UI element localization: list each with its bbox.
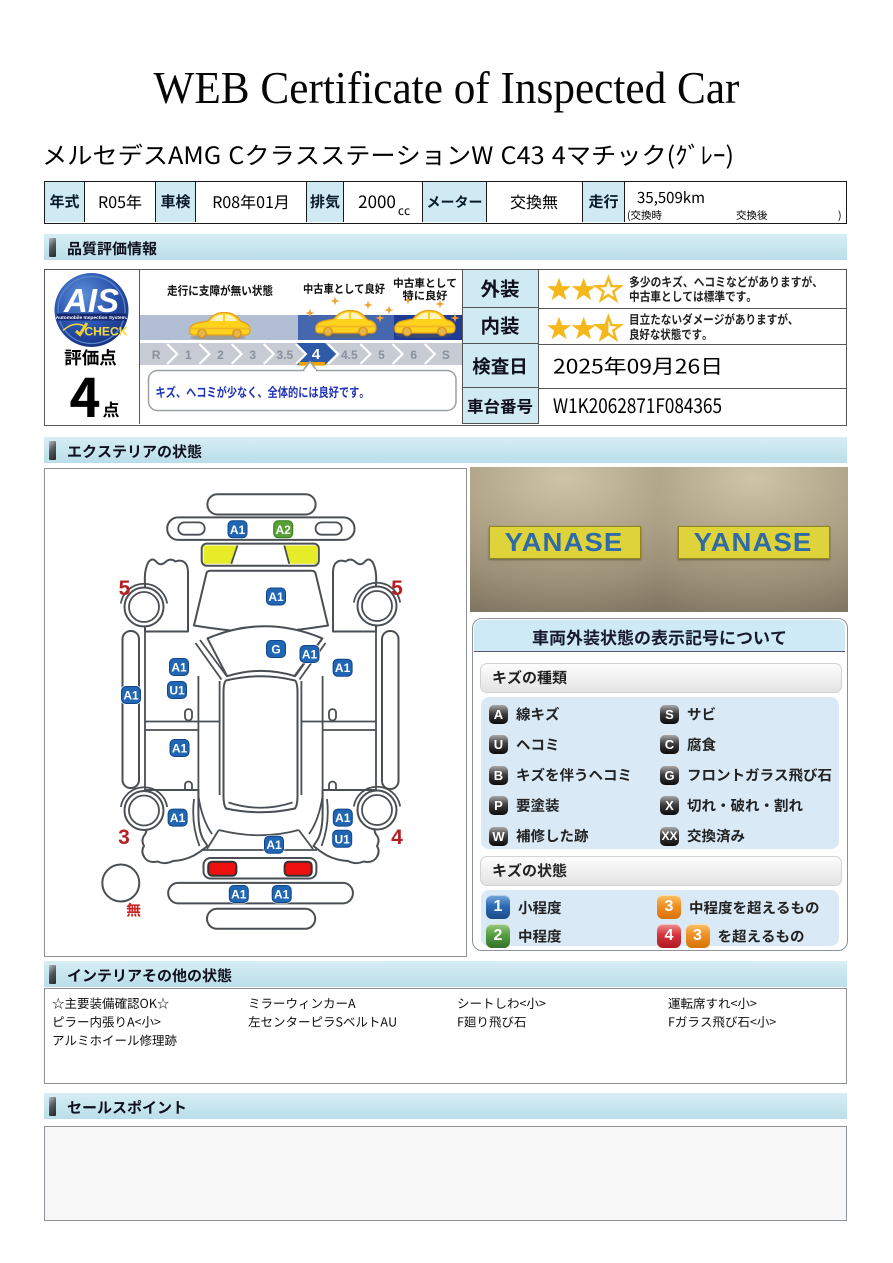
svg-text:4: 4 <box>312 346 321 363</box>
svg-text:A1: A1 <box>123 689 139 703</box>
svg-text:Automobile Inspection System.: Automobile Inspection System. <box>56 315 127 321</box>
svg-text:4: 4 <box>391 826 403 849</box>
svg-text:3: 3 <box>118 826 130 849</box>
svg-text:A1: A1 <box>171 661 187 675</box>
svg-text:2: 2 <box>217 348 224 362</box>
svg-text:A1: A1 <box>230 523 246 537</box>
svg-text:U1: U1 <box>169 684 185 698</box>
svg-text:A2: A2 <box>276 523 292 537</box>
svg-text:AIS: AIS <box>63 282 119 319</box>
svg-text:R: R <box>152 348 161 362</box>
svg-text:5: 5 <box>378 348 385 362</box>
svg-text:A1: A1 <box>268 590 284 604</box>
svg-text:A1: A1 <box>170 811 186 825</box>
svg-text:4.5: 4.5 <box>341 348 358 362</box>
svg-text:5: 5 <box>391 577 403 600</box>
svg-text:3.5: 3.5 <box>277 348 294 362</box>
svg-text:6: 6 <box>410 348 417 362</box>
svg-text:CHECK: CHECK <box>84 325 128 339</box>
svg-text:A1: A1 <box>231 888 247 902</box>
svg-text:A1: A1 <box>266 838 282 852</box>
svg-text:A1: A1 <box>172 742 188 756</box>
svg-text:5: 5 <box>119 577 131 600</box>
svg-text:G: G <box>271 643 280 657</box>
svg-text:A1: A1 <box>335 811 351 825</box>
svg-text:A1: A1 <box>274 888 290 902</box>
svg-text:3: 3 <box>249 348 256 362</box>
svg-text:U1: U1 <box>335 832 351 846</box>
svg-text:A1: A1 <box>335 661 351 675</box>
svg-text:A1: A1 <box>302 648 318 662</box>
svg-text:1: 1 <box>185 348 192 362</box>
svg-text:S: S <box>442 348 450 362</box>
